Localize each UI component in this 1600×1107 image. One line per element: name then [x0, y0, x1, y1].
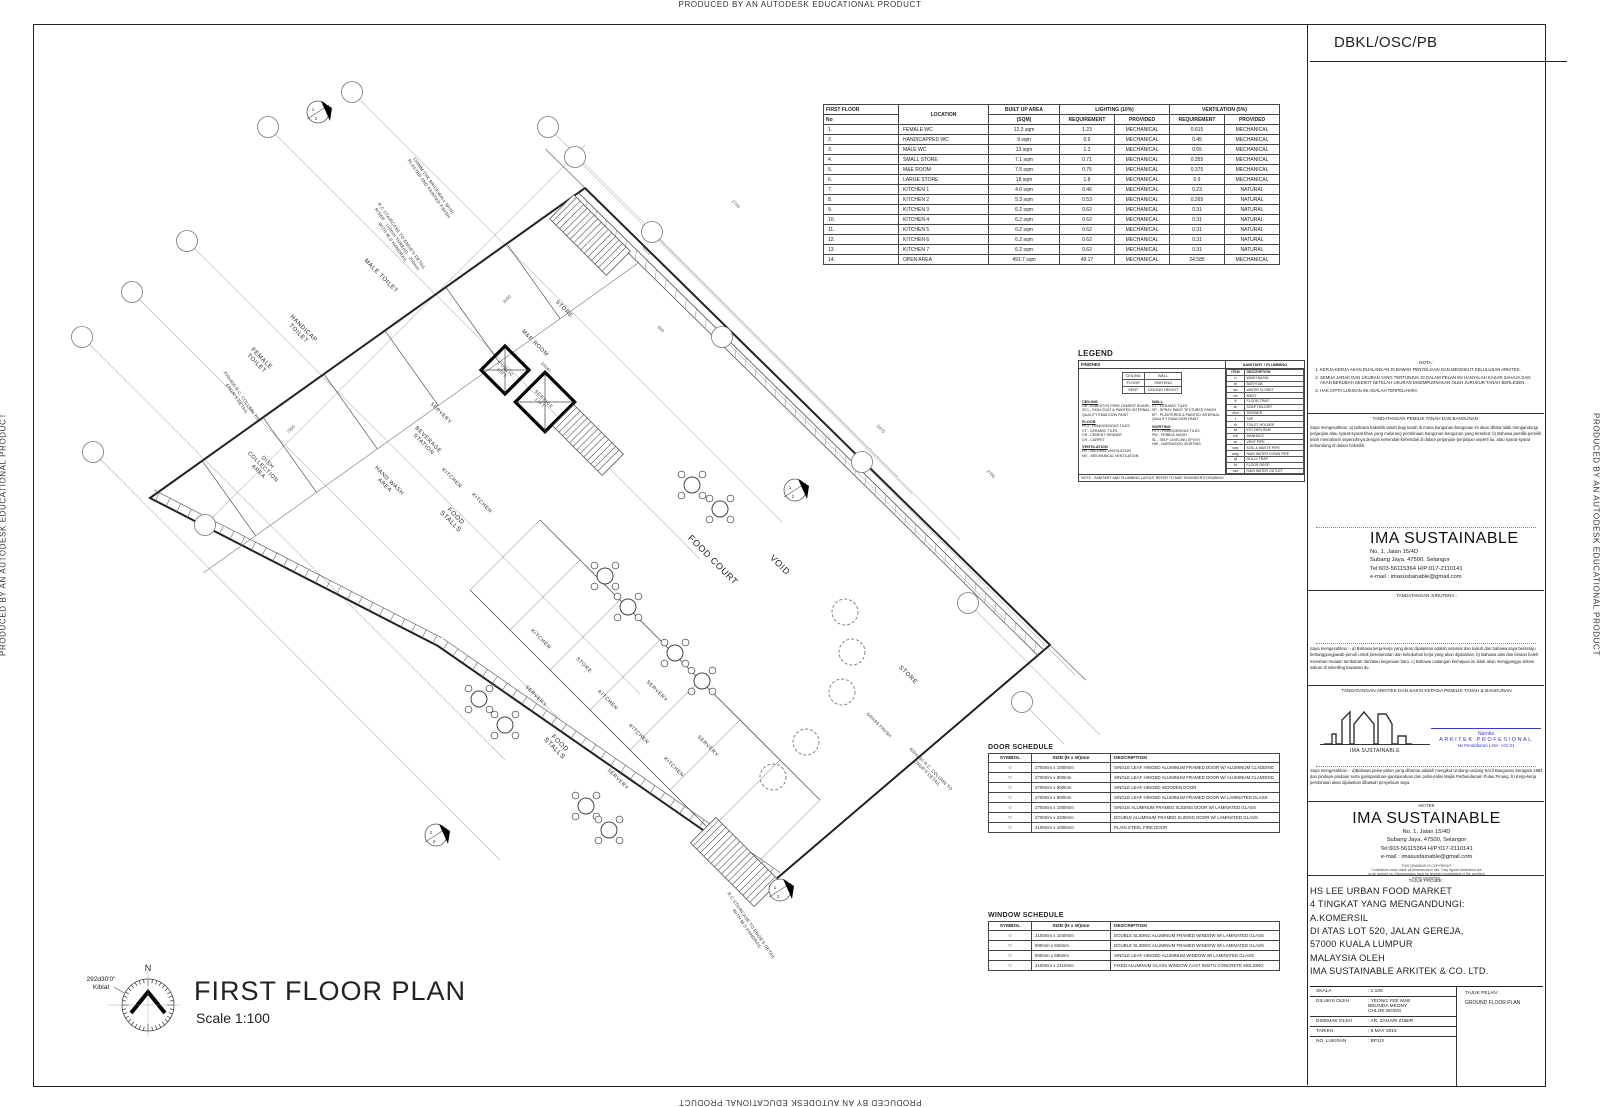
boundary-hatch [591, 745, 596, 752]
legend-finishes: FINISHES CEILINGWALLFLOORSKIRTINGVENTCEI… [1079, 361, 1226, 474]
tree [839, 639, 865, 665]
walkway-hatch [995, 603, 996, 613]
room-label: FOOD COURT [686, 533, 740, 587]
plan-annotation: 400x450 R.C. COLUMN TOENGR'S DETAIL [905, 747, 954, 796]
walkway-hatch [925, 534, 926, 544]
dining-table [706, 495, 734, 523]
boundary-hatch [347, 591, 351, 599]
room-label: KITCHEN [529, 628, 552, 651]
dining-table [661, 639, 689, 667]
compass-tick [128, 1019, 131, 1022]
project-title-section: TAJUK PROJEK : HS LEE URBAN FOOD MARKET … [1310, 878, 1543, 978]
akitek-label: AKITEK [1310, 803, 1543, 808]
symbol-circle-icon: ○ [989, 763, 1032, 773]
door-col-desc: DESCRIPTION [1111, 754, 1280, 763]
boundary-hatch [273, 553, 277, 561]
room-label: MALE TOILET [363, 258, 399, 294]
plan-title: FIRST FLOOR PLAN [194, 976, 466, 1007]
partition-wall [324, 374, 377, 449]
project-title-text: HS LEE URBAN FOOD MARKET 4 TINGKAT YANG … [1310, 885, 1543, 978]
symbol-circle-icon: ○ [989, 951, 1032, 961]
grid-bubble [177, 231, 198, 252]
grid-bubble [72, 327, 93, 348]
boundary-hatch [433, 635, 437, 643]
plan-annotation: 250x400 R.C. COLUMN TOENGR'S DETAIL [218, 370, 260, 424]
table-row: 5.M&E ROOM7.5 sqm0.75MECHANICAL0.375MECH… [824, 165, 1280, 175]
tajuk-pelan-value: GROUND FLOOR PLAN [1465, 1000, 1543, 1006]
grid-bubble [712, 327, 733, 348]
finishes-col-a: CEILINGCB - ASBESTOS FREE CEMENT BOARDSC… [1082, 397, 1152, 458]
meta-row: TARIKH: 6 MAY 2015 [1310, 1027, 1456, 1037]
grid-bubble [852, 452, 873, 473]
grid-bubble [565, 147, 586, 168]
ima-logo [1320, 704, 1430, 748]
table-row: 6.LARGE STORE18 sqm1.8MECHANICAL0.9MECHA… [824, 175, 1280, 185]
compass-tick [131, 985, 134, 988]
table-row: 2.HANDICAPPED WC9 sqm0.9MECHANICAL0.45ME… [824, 135, 1280, 145]
col-lighting: LIGHTING (10%) [1060, 105, 1170, 115]
compass-tick [152, 1027, 153, 1031]
dining-table [465, 685, 493, 713]
boundary-hatch [294, 564, 298, 572]
walkway-hatch [775, 387, 776, 397]
boundary-hatch [463, 656, 468, 663]
legend-panel: LEGEND FINISHES CEILINGWALLFLOORSKIRTING… [1078, 349, 1305, 482]
meta-rows: SKALA: 1:100DILUKIS OLEH: YEONG YEE MAE … [1310, 987, 1457, 1086]
walkway-hatch [1025, 632, 1026, 642]
firm-block-2: AKITEK IMA SUSTAINABLE No. 1, Jalan 15/4… [1310, 803, 1543, 881]
dimension-text: 600 [657, 324, 666, 333]
tree [760, 764, 786, 790]
window-schedule-title: WINDOW SCHEDULE [988, 912, 1280, 919]
grid-line [722, 337, 1005, 620]
engineer-declaration: Saya mengesahkan :- a) Bahawa kerja-kerj… [1310, 646, 1543, 671]
boundary-hatch [640, 779, 645, 786]
dining-table [678, 471, 706, 499]
room-label: STORE [574, 656, 593, 675]
grid-bubble [83, 442, 104, 463]
owner-declaration-text: Saya mengesahkan: a) bahawa hakmilik tan… [1310, 425, 1543, 449]
walkway-hatch [975, 583, 976, 593]
boundary-hatch [230, 531, 234, 539]
symbol-circle-icon: ○ [989, 783, 1032, 793]
firm-block-1: IMA SUSTAINABLE No. 1, Jalan 15/4D Suban… [1310, 530, 1600, 582]
compass-tick [131, 1022, 134, 1025]
kitchen-partition [710, 760, 780, 830]
walkway-hatch [645, 260, 646, 270]
firm-address-2: No. 1, Jalan 15/4D Subang Jaya, 47500, S… [1310, 828, 1543, 862]
compass-tick [128, 988, 131, 991]
table-row: ○2100mm x 1410mmFIXED ALUMINUM GLASS WIN… [989, 961, 1280, 971]
firm-name-2: IMA SUSTAINABLE [1310, 810, 1543, 828]
compass-tick [169, 996, 173, 997]
finishes-col-b: WALLCT - CERAMIC TILESSP - SPRAY PAINT T… [1152, 397, 1222, 458]
compass-tick [162, 985, 165, 988]
boundary-hatch [166, 498, 170, 506]
boundary-offset-line [154, 490, 442, 638]
partition-wall [385, 331, 438, 406]
boundary-hatch [620, 765, 625, 772]
grid-bubble [538, 117, 559, 138]
meta-row: DILUKIS OLEH: YEONG YEE MAE BELINDA MKON… [1310, 997, 1456, 1017]
walkway-hatch [735, 348, 736, 358]
architect-lam-no: No Pendaftaran LAM : A/O 01 [1431, 743, 1541, 748]
firm-address: No. 1, Jalan 15/4D Subang Jaya, 47500, S… [1370, 548, 1600, 582]
boundary-hatch [315, 575, 319, 583]
compass-tick [167, 992, 170, 994]
plan-scale: Scale 1:100 [196, 1010, 270, 1026]
boundary-hatch [283, 559, 287, 567]
symbol-circle-icon: ○ [989, 823, 1032, 833]
boundary-hatch [262, 548, 266, 556]
table-row: ○2100mm x 1000mmPLAIN STEEL FIRE DOOR [989, 823, 1280, 833]
room-label: HAND WASHAREA [369, 465, 405, 501]
dining-table [595, 816, 623, 844]
boundary-hatch [187, 509, 191, 517]
symbol-circle-icon: ○ [989, 961, 1032, 971]
walkway-hatch [745, 358, 746, 368]
room-label: PUBLICLIFT [493, 360, 515, 382]
boundary-hatch [177, 504, 181, 512]
staircase [553, 405, 624, 476]
finishes-header: FINISHES [1079, 361, 1225, 369]
compass-tick [125, 1016, 128, 1018]
boundary-hatch [610, 758, 615, 765]
compass-tick [152, 979, 153, 983]
walkway-hatch [695, 309, 696, 319]
engineer-signature-title: TANDATANGAN JURUTERA : [1310, 593, 1543, 598]
table-row: 7.KITCHEN 14.6 sqm0.46MECHANICAL0.23NATU… [824, 185, 1280, 195]
boundary-hatch [571, 731, 576, 738]
architect-declaration: Saya mengesahkan :- a)Bahawa pelan-pelan… [1310, 768, 1543, 786]
boundary-hatch [390, 613, 394, 621]
walkway-hatch [795, 407, 796, 417]
boundary-hatch [482, 669, 487, 676]
kitchen-partition [510, 560, 580, 630]
table-row: ○2100mm x 1040mmDOUBLE SLIDING ALUMINUM … [989, 931, 1280, 941]
col-no: No [824, 115, 899, 125]
walkway-hatch [935, 544, 936, 554]
compass-tick [170, 1009, 174, 1010]
walkway-hatch [765, 377, 766, 387]
finish-group: VENTILATIONNV - NATURAL VENTILATIONMV - … [1082, 444, 1152, 458]
symbol-circle-icon: ○ [989, 941, 1032, 951]
col-location: LOCATION [899, 105, 989, 125]
compass-tick [124, 1013, 128, 1014]
door-schedule-rows: ○2700mm x 1000mmSINGLE LEAF HINGED ALUMI… [989, 763, 1280, 833]
finish-group: SKIRTINGHT3 - HOMOGENOUS TILESPW - PEBBL… [1152, 424, 1222, 447]
room-label: SERVERY [645, 679, 669, 703]
kiblat-arrow [114, 987, 124, 993]
window-schedule-rows: ○2100mm x 1040mmDOUBLE SLIDING ALUMINUM … [989, 931, 1280, 971]
dining-table [688, 667, 716, 695]
grid-bubble [122, 282, 143, 303]
legend-note: NOTE : SANITARY AND PLUMBING LAYOUT REFE… [1078, 475, 1305, 482]
kitchen-partition [470, 520, 540, 590]
kitchen-partition [550, 600, 620, 670]
room-label: BEVERAGESTATION [409, 425, 443, 459]
window-schedule: WINDOW SCHEDULE SYMBOL SIZE (H x W)mm DE… [988, 912, 1280, 971]
legend-title: LEGEND [1078, 349, 1305, 358]
table-row: rwoRAIN WATER OUTLET [1227, 468, 1304, 474]
kitchen-partition [590, 640, 660, 710]
tree [832, 599, 858, 625]
symbol-circle-icon: ○ [989, 813, 1032, 823]
compass-tick [124, 996, 128, 997]
staircase [690, 817, 779, 906]
grid-bubble [195, 515, 216, 536]
partition-wall [446, 287, 499, 362]
grid-bubble [258, 117, 279, 138]
compass-tick [170, 1000, 174, 1001]
dimension-text: 2700 [731, 199, 742, 210]
area-lighting-ventilation-table: FIRST FLOOR LOCATION BUILT UP AREA LIGHT… [823, 104, 1280, 265]
compass-tick [143, 1027, 144, 1031]
room-label: KITCHEN [440, 467, 463, 490]
kiblat-label: 292d30'0"Kiblat [87, 976, 117, 991]
boundary-hatch [650, 786, 655, 793]
architect-registration: Naroka ARKITEK PROFESIONAL No Pendaftara… [1431, 728, 1541, 748]
dimension-text: 3050 [502, 293, 513, 304]
boundary-hatch [541, 710, 546, 717]
boundary-hatch [453, 649, 458, 656]
grid-line [268, 127, 700, 559]
dimension-text: 2790 [986, 469, 997, 480]
table-row: 10.KITCHEN 46.2 sqm0.62MECHANICAL0.31NAT… [824, 215, 1280, 225]
dining-table [491, 711, 519, 739]
compass-tick [143, 979, 144, 983]
table-row: 9.KITCHEN 36.2 sqm0.62MECHANICAL0.31NATU… [824, 205, 1280, 215]
firm-name: IMA SUSTAINABLE [1370, 530, 1600, 548]
boundary-hatch [422, 630, 426, 638]
col-first-floor: FIRST FLOOR [824, 105, 899, 115]
walkway-hatch [655, 269, 656, 279]
project-title-label: TAJUK PROJEK : [1310, 878, 1543, 883]
table-row: ○2700mm x 1000mmSINGLE ALUMINUM FRAMED S… [989, 803, 1280, 813]
compass-tick [156, 1026, 157, 1030]
table-row: ○2700mm x 900mmSINGLE LEAF HINGED WOODEN… [989, 783, 1280, 793]
walkway-hatch [1035, 642, 1036, 652]
table-row: 13.KITCHEN 76.2 sqm0.62MECHANICAL0.31NAT… [824, 245, 1280, 255]
finishes-matrix: CEILINGWALLFLOORSKIRTINGVENTCEILING HEIG… [1122, 372, 1183, 394]
boundary-hatch [551, 717, 556, 724]
table-row: 1.FEMALE WC12.3 sqm1.23MECHANICAL0.615ME… [824, 125, 1280, 135]
grid-bubble [642, 222, 663, 243]
kitchen-partition [750, 800, 820, 870]
room-label: KITCHEN [627, 723, 650, 746]
compass-tick [156, 981, 157, 985]
door-col-symbol: SYMBOL [989, 754, 1032, 763]
nota-list: KERJA-KERJA AKAN DIJALANKAN DI BAWAH PEN… [1310, 367, 1543, 393]
finish-group: FLOORHT3 - HOMOGENOUS TILESCT - CERAMIC … [1082, 419, 1152, 442]
boundary-hatch [670, 799, 675, 806]
finish-group: CEILINGCB - ASBESTOS FREE CEMENT BOARDSC… [1082, 399, 1152, 417]
boundary-hatch [472, 663, 477, 670]
dimension-text: 5470 [876, 424, 887, 435]
table-row: ○2700mm x 2200mmDOUBLE ALUMINUM FRAMED S… [989, 813, 1280, 823]
compass-tick [165, 1019, 168, 1022]
compass-north-label: N [145, 963, 152, 973]
staircase [550, 195, 631, 276]
room-label: M&E ROOM [520, 329, 549, 358]
col-built-up-area: BUILT UP AREA [989, 105, 1060, 115]
compass-tick [169, 1013, 173, 1014]
kitchen-partition [670, 720, 740, 790]
col-vent-req: REQUIREMENT [1170, 115, 1225, 125]
boundary-hatch [561, 724, 566, 731]
grid-line [862, 462, 1075, 675]
void-edge-line [574, 199, 1039, 656]
compass-tick [122, 1009, 126, 1010]
nota-title: NOTA : [1310, 360, 1543, 365]
boundary-extension [1050, 645, 1086, 680]
symbol-circle-icon: ○ [989, 803, 1032, 813]
authority-reference: DBKL/OSC/PB [1310, 24, 1567, 62]
walkway-hatch [1005, 613, 1006, 623]
boundary-hatch [581, 738, 586, 745]
meta-row: SKALA: 1:100 [1310, 987, 1456, 997]
walkway-hatch [955, 564, 956, 574]
boundary-hatch [305, 570, 309, 578]
dimension-text: 7500 [286, 423, 297, 434]
table-row: 8.KITCHEN 25.3 sqm0.53MECHANICAL0.265NAT… [824, 195, 1280, 205]
architect-witness-title: TANDATANGAN ARKITEK DAN SAKSI KEPADA PEM… [1310, 688, 1543, 693]
autodesk-banner-bottom: PRODUCED BY AN AUTODESK EDUCATIONAL PROD… [0, 1098, 1600, 1107]
table-row: 3.MALE WC13 sqm1.3MECHANICAL0.65MECHANIC… [824, 145, 1280, 155]
walkway-hatch [685, 299, 686, 309]
walkway-hatch [755, 368, 756, 378]
grid-bubble [342, 82, 363, 103]
boundary-hatch [660, 793, 665, 800]
door-schedule: DOOR SCHEDULE SYMBOL SIZE (H x W)mm DESC… [988, 744, 1280, 833]
tajuk-pelan-label: TAJUK PELAN : [1465, 991, 1543, 996]
architect-name: Naroka [1431, 728, 1541, 737]
room-label: VOID [768, 553, 792, 577]
room-label: KITCHEN [470, 492, 493, 515]
sanitary-header: SANITARY / PLUMBING [1226, 361, 1304, 369]
symbol-circle-icon: ○ [989, 773, 1032, 783]
drawing-sheet: PRODUCED BY AN AUTODESK EDUCATIONAL PROD… [0, 0, 1600, 1107]
room-label: FEMALETOILET [244, 347, 273, 376]
legend-sanitary: SANITARY / PLUMBING ITEM DESCRIPTION bWA… [1226, 361, 1304, 474]
room-label: HANDICAPTOILET [283, 314, 318, 349]
boundary-hatch [411, 624, 415, 632]
table-row: ○900mm x 580mmSINGLE LEAF HINGED ALUMINU… [989, 951, 1280, 961]
walkway-hatch [635, 250, 636, 260]
boundary-hatch [601, 752, 606, 759]
grid-bubble [1012, 692, 1033, 713]
room-label: FOODSTALLS [438, 504, 468, 534]
compass-tick [135, 982, 137, 985]
plan-annotation: R.C STAIRCASE TO ENGR'S DETAILRISER : 15… [368, 202, 427, 277]
boundary-hatch [630, 772, 635, 779]
walkway-hatch [805, 417, 806, 427]
compass-tick [159, 982, 161, 985]
boundary-hatch [401, 619, 405, 627]
walkway-hatch [865, 475, 866, 485]
meta-row: NO. LUKISAN: BP1/3 [1310, 1037, 1456, 1046]
table-row: 4.SMALL STORE7.1 sqm0.71MECHANICAL0.355M… [824, 155, 1280, 165]
boundary-hatch [492, 676, 497, 683]
grid-line [82, 337, 505, 760]
room-label: SERVERY [696, 734, 720, 758]
grid-line [968, 603, 1100, 735]
boundary-hatch [369, 602, 373, 610]
grid-bubble [958, 593, 979, 614]
walkway-hatch [1015, 623, 1016, 633]
door-col-size: SIZE (H x W)mm [1032, 754, 1111, 763]
boundary-hatch [219, 526, 223, 534]
boundary-hatch [512, 690, 517, 697]
compass-tick [125, 992, 128, 994]
meta-row: DISEMAK OLEH: AR. ZAHARI ZUBIR [1310, 1017, 1456, 1027]
window-col-symbol: SYMBOL [989, 922, 1032, 931]
dining-table [614, 593, 642, 621]
partition-wall [507, 244, 560, 319]
table-row: 11.KITCHEN 56.2 sqm0.62MECHANICAL0.31NAT… [824, 225, 1280, 235]
owner-declaration-title: TANDATANGAN PEMILIK TANAH DAN BANGUNAN : [1310, 416, 1543, 423]
table-row: ○2700mm x 800mmSINGLE LEAF HINGED ALUMIN… [989, 773, 1280, 783]
table-row: 12.KITCHEN 66.2 sqm0.62MECHANICAL0.31NAT… [824, 235, 1280, 245]
dining-table [591, 562, 619, 590]
boundary-hatch [358, 597, 362, 605]
compass-tick [159, 1024, 161, 1027]
walkway-hatch [945, 554, 946, 564]
col-light-req: REQUIREMENT [1060, 115, 1115, 125]
sanitary-rows: bWASH BASINbtBATHTUBwcWATER CLOSETbdBIDE… [1227, 375, 1304, 474]
door-schedule-title: DOOR SCHEDULE [988, 744, 1280, 751]
boundary-hatch [502, 683, 507, 690]
room-label: KITCHEN [662, 756, 685, 779]
table-row: ○2700mm x 900mmSINGLE LEAF HINGED ALUMIN… [989, 793, 1280, 803]
walkway-hatch [985, 593, 986, 603]
col-sqm: (SQM) [989, 115, 1060, 125]
boundary-hatch [532, 704, 537, 711]
walkway-hatch [785, 397, 786, 407]
walkway-hatch [965, 574, 966, 584]
walkway-hatch [665, 279, 666, 289]
boundary-hatch [522, 697, 527, 704]
symbol-circle-icon: ○ [989, 793, 1032, 803]
table-row: ○900mm x 840mmDOUBLE SLIDING ALUMINUM FR… [989, 941, 1280, 951]
boundary-hatch [337, 586, 341, 594]
drawing-meta-table: SKALA: 1:100DILUKIS OLEH: YEONG YEE MAE … [1310, 986, 1543, 1086]
compass-tick [135, 1024, 137, 1027]
finish-group: WALLCT - CERAMIC TILESSP - SPRAY PAINT T… [1152, 399, 1222, 422]
boundary-hatch [443, 642, 448, 649]
plan-annotation: 150MM THK BRICKWALL WITHPLASTER AND PAIN… [407, 155, 456, 219]
nota-section: NOTA : KERJA-KERJA AKAN DIJALANKAN DI BA… [1310, 360, 1543, 395]
plan-annotation: GRASS FINISH [865, 711, 892, 738]
compass-tick [139, 1026, 140, 1030]
boundary-hatch [679, 806, 684, 813]
room-label: SERVERY [429, 401, 453, 425]
boundary-hatch [251, 542, 255, 550]
walkway-hatch [675, 289, 676, 299]
room-label: STORE [897, 665, 918, 686]
symbol-circle-icon: ○ [989, 931, 1032, 941]
area-table-rows: 1.FEMALE WC12.3 sqm1.23MECHANICAL0.615ME… [824, 125, 1280, 265]
dining-table [572, 792, 600, 820]
boundary-hatch [241, 537, 245, 545]
compass-tick [122, 1000, 126, 1001]
window-col-size: SIZE (H x W)mm [1032, 922, 1111, 931]
table-row: ○2700mm x 1000mmSINGLE LEAF HINGED ALUMI… [989, 763, 1280, 773]
compass-tick [139, 981, 140, 985]
tree [793, 729, 819, 755]
col-ventilation: VENTILATION (5%) [1170, 105, 1280, 115]
col-vent-prov: PROVIDED [1225, 115, 1280, 125]
